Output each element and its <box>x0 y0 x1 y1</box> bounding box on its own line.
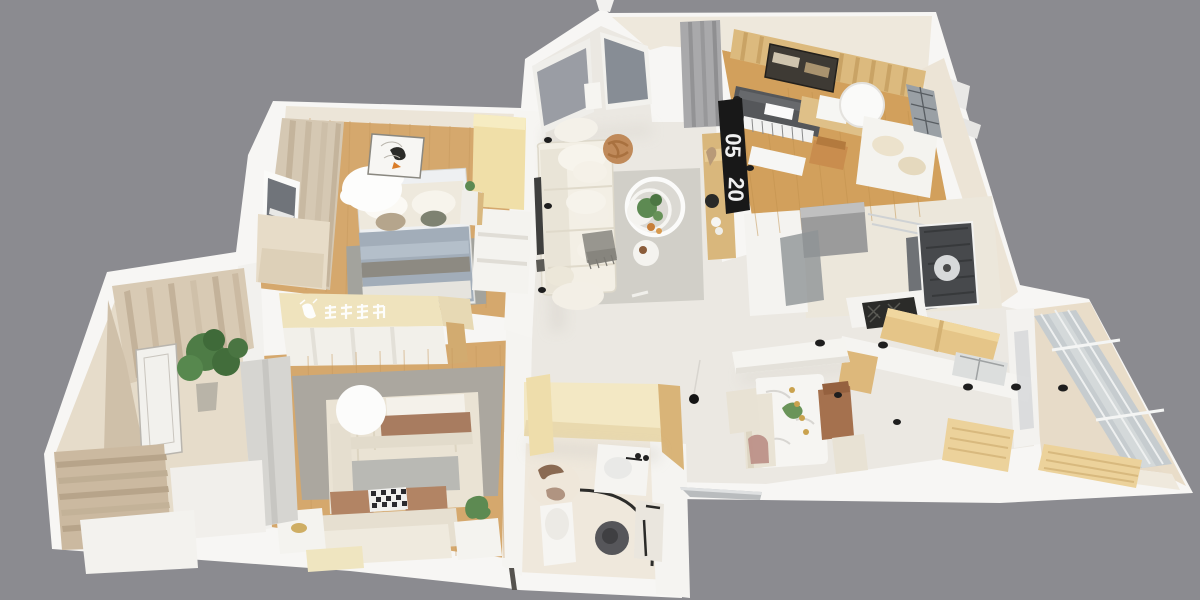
svg-text:20: 20 <box>723 177 749 202</box>
svg-text:05: 05 <box>720 133 746 158</box>
